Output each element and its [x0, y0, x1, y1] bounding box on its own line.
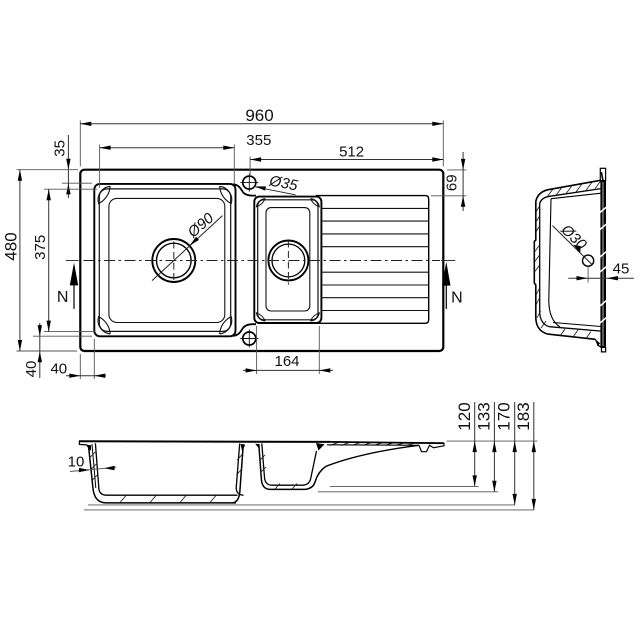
svg-text:40: 40: [23, 361, 40, 378]
svg-text:45: 45: [613, 261, 630, 278]
svg-text:N: N: [451, 290, 463, 307]
svg-text:183: 183: [514, 402, 533, 430]
svg-text:35: 35: [51, 140, 68, 157]
svg-text:960: 960: [245, 106, 273, 125]
svg-text:N: N: [57, 289, 69, 306]
svg-text:69: 69: [444, 174, 461, 191]
svg-text:480: 480: [1, 232, 20, 260]
svg-text:355: 355: [246, 132, 271, 149]
svg-text:120: 120: [455, 402, 474, 430]
svg-text:164: 164: [274, 353, 299, 370]
svg-text:170: 170: [494, 402, 513, 430]
svg-text:375: 375: [32, 235, 49, 260]
svg-text:133: 133: [475, 402, 494, 430]
svg-text:10: 10: [68, 454, 85, 471]
svg-text:512: 512: [339, 144, 364, 161]
svg-text:40: 40: [50, 361, 67, 378]
